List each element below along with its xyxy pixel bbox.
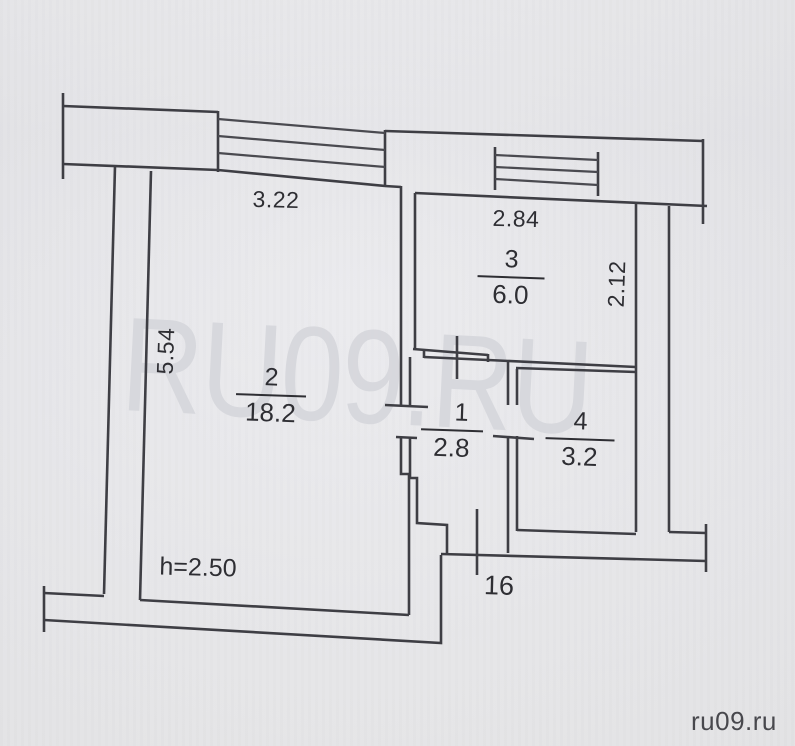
room2-number: 2 (264, 363, 279, 392)
exterior-wall-right (669, 206, 706, 572)
exterior-wall-left (104, 166, 151, 600)
ceiling-height-note: h=2.50 (159, 552, 237, 583)
site-credit: ru09.ru (691, 706, 777, 737)
exterior-wall-top-right (385, 131, 703, 224)
unit-number: 16 (484, 570, 515, 602)
dimension-left-vertical: 5.54 (152, 327, 181, 375)
exterior-wall-top-left (63, 93, 218, 179)
window-hatch-right (495, 147, 598, 196)
dimension-top-right: 2.84 (492, 205, 539, 233)
room1-label: 1 2.8 (420, 397, 484, 464)
room1-area: 2.8 (433, 432, 470, 464)
room3-area: 6.0 (492, 279, 529, 311)
room1-number: 1 (454, 398, 469, 427)
room4-label: 4 3.2 (544, 406, 615, 474)
room2-area: 18.2 (245, 397, 297, 430)
room4-area: 3.2 (561, 441, 598, 473)
window-hatch-left (218, 111, 385, 187)
room2-label: 2 18.2 (235, 362, 307, 430)
room4-number: 4 (573, 407, 588, 436)
dimension-top-left: 3.22 (252, 186, 299, 214)
room3-label: 3 6.0 (476, 244, 545, 312)
floorplan-photo: RU09.RU (0, 0, 795, 746)
room3-number: 3 (504, 245, 519, 274)
exterior-wall-bottom (44, 554, 706, 643)
dimension-right-vertical: 2.12 (603, 260, 632, 308)
floorplan-drawing (0, 0, 795, 746)
